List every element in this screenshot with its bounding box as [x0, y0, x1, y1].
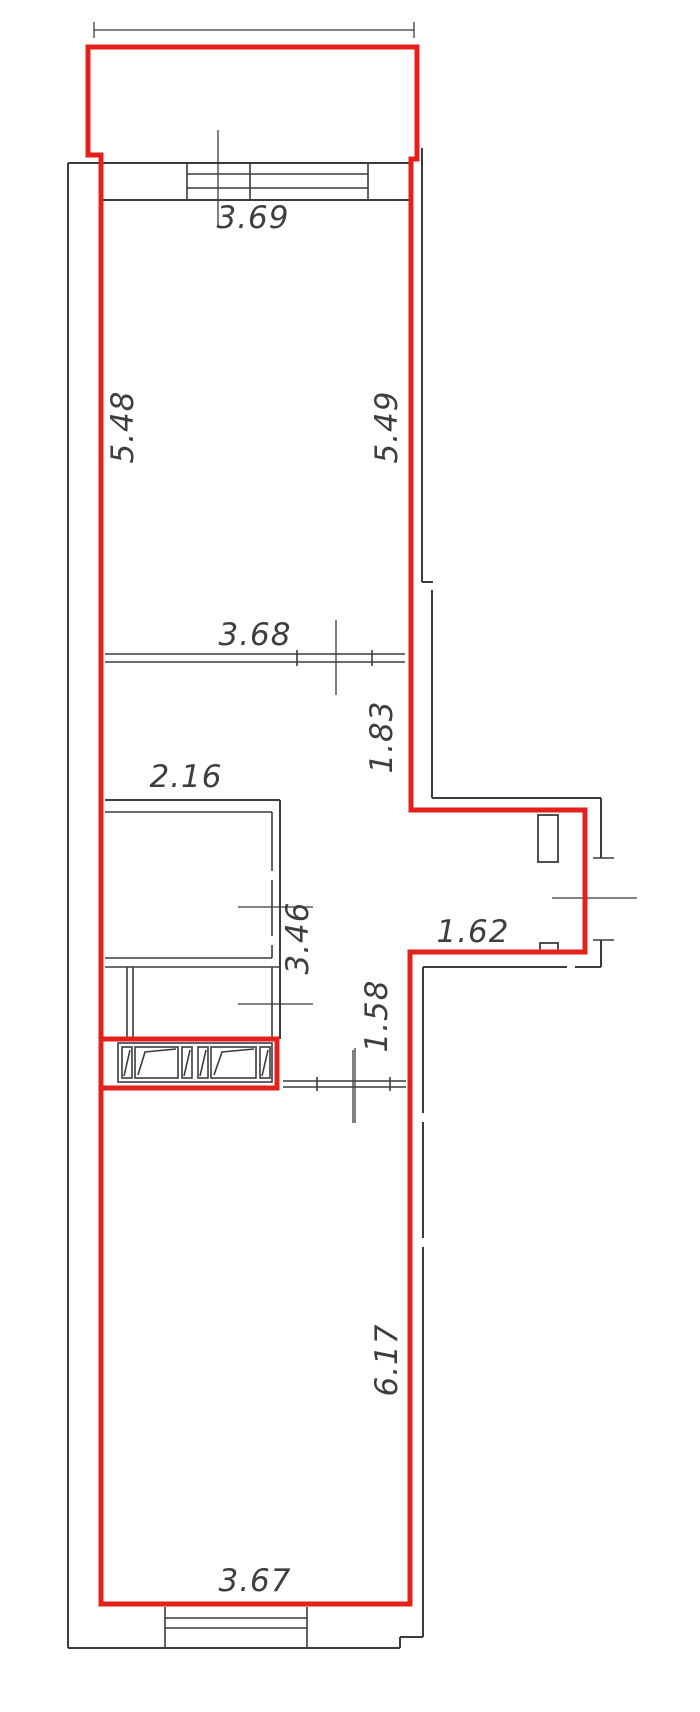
- dim-label-right-wall: 5.49: [369, 390, 405, 463]
- floor-plan-drawing: 3.69 5.48 5.49 3.68 1.83 2.16 3.46 1.62 …: [0, 0, 700, 1712]
- building-outline: [68, 148, 614, 1648]
- dim-label-entrance-width: 1.62: [436, 914, 509, 950]
- dim-label-interior-wall: 3.68: [218, 617, 291, 653]
- bottom-window: [165, 1607, 307, 1648]
- dim-label-window-width: 3.69: [216, 200, 289, 236]
- vent-shafts: [118, 1043, 272, 1082]
- floor-plan: 3.69 5.48 5.49 3.68 1.83 2.16 3.46 1.62 …: [0, 0, 700, 1712]
- dimension-labels: 3.69 5.48 5.49 3.68 1.83 2.16 3.46 1.62 …: [105, 200, 510, 1599]
- entrance-fixtures: [538, 815, 558, 952]
- dim-label-lower-room-width: 3.67: [218, 1563, 291, 1599]
- closet-walls: [105, 800, 280, 1039]
- dim-label-left-wall: 5.48: [105, 390, 141, 463]
- duct-box: [538, 815, 558, 862]
- dim-label-closet-depth: 3.46: [280, 901, 316, 974]
- top-wall-window: [68, 163, 411, 200]
- interior-wall-lower: [283, 1077, 406, 1091]
- dim-label-passage: 1.58: [359, 979, 395, 1052]
- dim-label-closet-width: 2.16: [149, 759, 222, 795]
- dim-label-lower-room-height: 6.17: [369, 1323, 405, 1396]
- apartment-red-outline: [88, 47, 585, 1604]
- dim-label-hall-height: 1.83: [364, 700, 400, 773]
- unit-boundary-red: [88, 47, 585, 1604]
